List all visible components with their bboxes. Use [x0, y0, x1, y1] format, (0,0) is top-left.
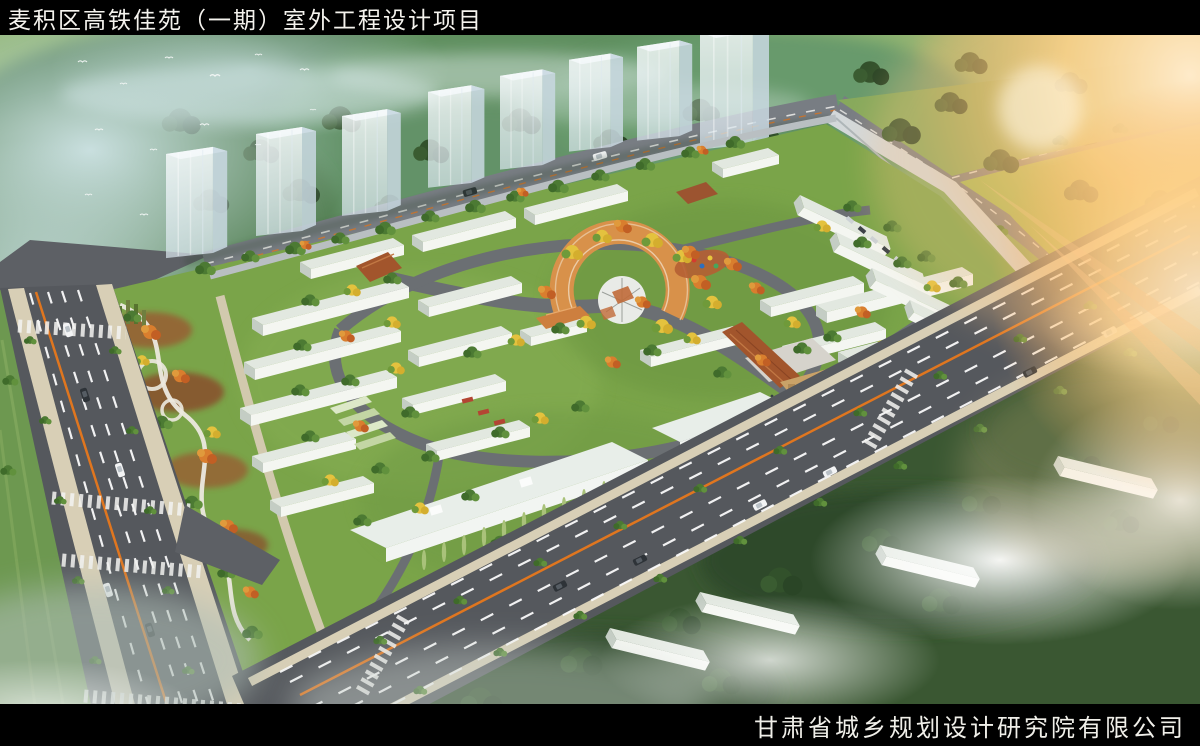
tower: [637, 40, 692, 140]
tower: [428, 85, 484, 187]
project-title: 麦积区高铁佳苑（一期）室外工程设计项目: [0, 1, 483, 35]
rendering-board: 麦积区高铁佳苑（一期）室外工程设计项目 甘肃省城乡规划设计研究院有限公司: [0, 0, 1200, 746]
tower: [256, 127, 316, 236]
title-bar: 麦积区高铁佳苑（一期）室外工程设计项目: [0, 0, 1200, 35]
aerial-rendering: [0, 0, 1200, 746]
company-name: 甘肃省城乡规划设计研究院有限公司: [754, 708, 1200, 743]
tower: [342, 109, 401, 216]
credit-bar: 甘肃省城乡规划设计研究院有限公司: [0, 704, 1200, 746]
tower: [569, 54, 623, 152]
tower: [166, 147, 227, 258]
tower: [500, 69, 555, 169]
